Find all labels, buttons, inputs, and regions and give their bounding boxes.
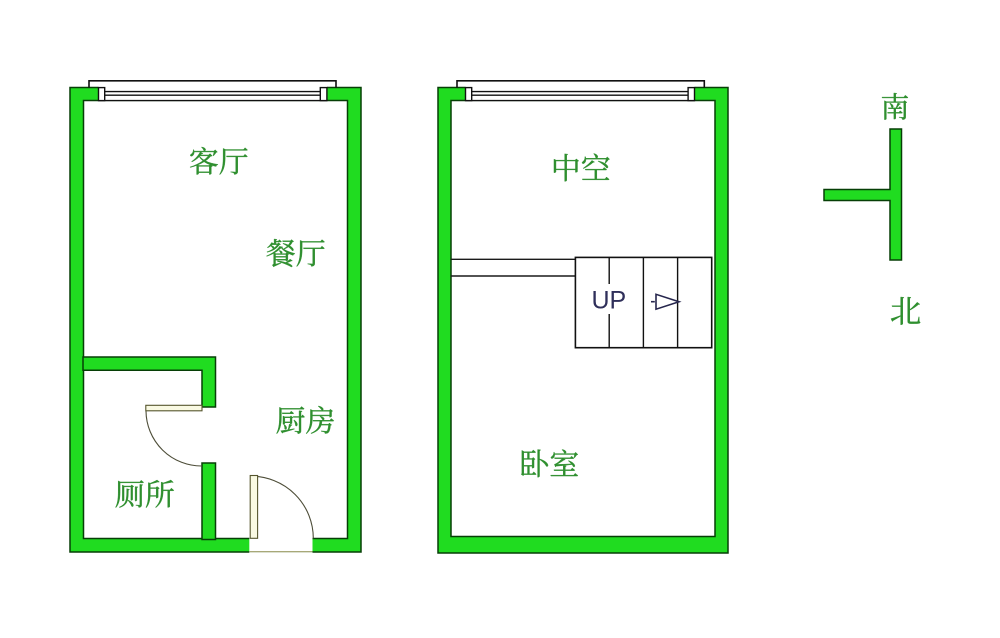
svg-text:UP: UP: [592, 287, 627, 315]
